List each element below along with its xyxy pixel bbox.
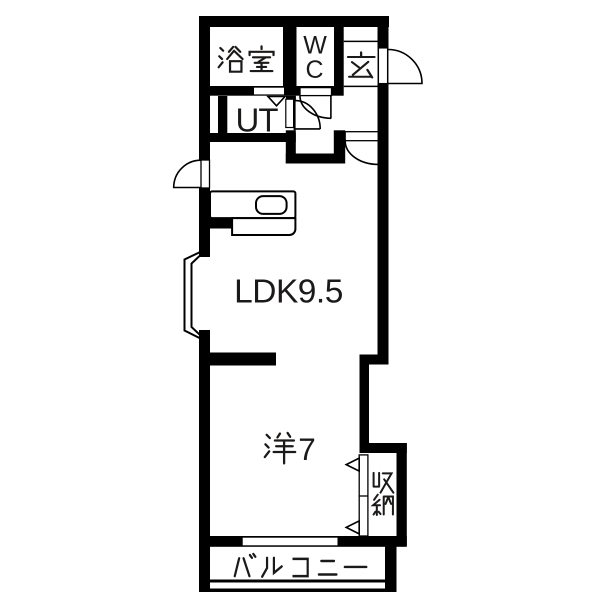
svg-text:C: C	[305, 56, 323, 84]
svg-text:7: 7	[298, 431, 316, 467]
svg-text:LDK9.5: LDK9.5	[234, 273, 343, 310]
svg-text:UT: UT	[236, 102, 279, 139]
